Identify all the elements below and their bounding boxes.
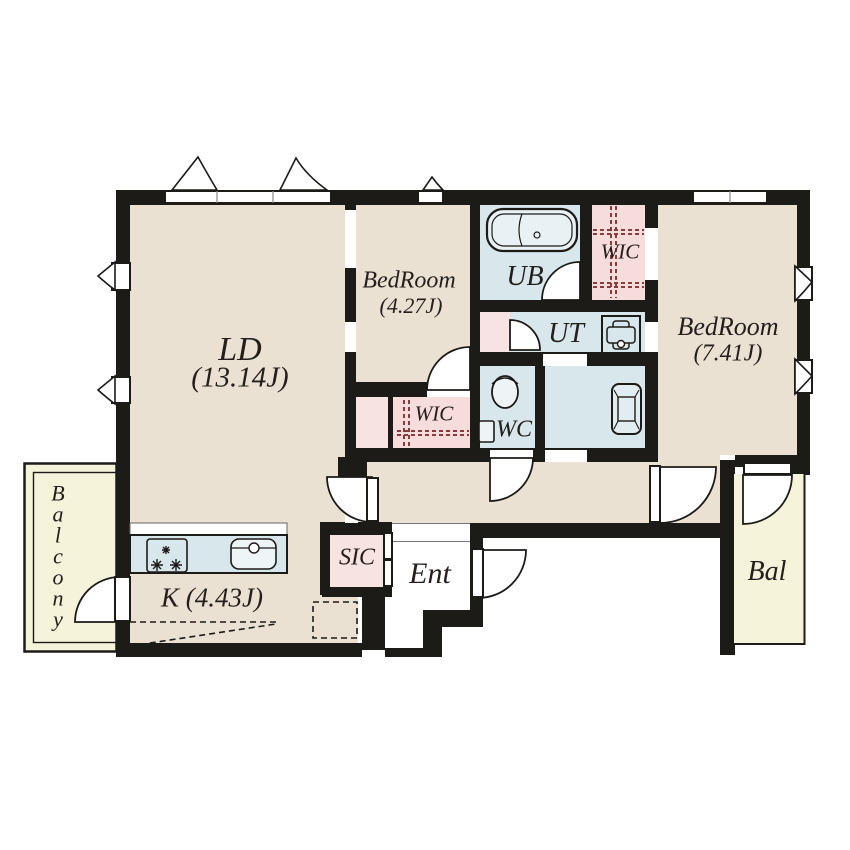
- floor-plan: LD (13.14J) BedRoom (4.27J) BedRoom (7.4…: [0, 0, 850, 850]
- window-awning-icon: [172, 157, 217, 190]
- door-arc-bedroom-large: [660, 467, 716, 523]
- label-wc: WC: [496, 417, 532, 444]
- fridge-space-dashed-box: [313, 602, 357, 638]
- balcony-left-structure: [25, 464, 117, 652]
- door-arc-wic-lower: [427, 347, 470, 390]
- vanity-icon: [612, 384, 641, 434]
- door-leaf-sic-lower: [383, 559, 393, 587]
- label-bedroom-small-name: BedRoom: [362, 268, 455, 295]
- door-leaf-ld: [366, 477, 379, 522]
- door-leaf-bedroom-large: [649, 465, 661, 523]
- bathtub-icon: [487, 209, 577, 251]
- label-balcony-right: Bal: [748, 556, 787, 588]
- label-balcony-left: Balcony: [51, 483, 64, 630]
- label-ld-size: (13.14J): [191, 362, 288, 395]
- door-leaf-balcony-left: [114, 576, 131, 622]
- label-bedroom-small-size: (4.27J): [380, 293, 443, 319]
- faucet-icon: [249, 543, 259, 553]
- label-ent: Ent: [409, 557, 451, 591]
- window-pane-dividers: [217, 191, 730, 203]
- label-wic-upper: WIC: [601, 240, 640, 265]
- door-arc-front-door: [478, 550, 526, 598]
- label-wic-lower: WIC: [415, 402, 454, 427]
- label-bedroom-large-size: (7.41J): [694, 341, 763, 368]
- door-arc-wc: [490, 458, 533, 501]
- door-leaf-sic-upper: [383, 532, 393, 560]
- window-awning-icon: [98, 262, 115, 290]
- washer-pan-icon: [602, 316, 640, 354]
- window-awning-icon: [795, 359, 812, 394]
- kitchen-counter: [130, 523, 287, 573]
- door-arc-unit-bath: [542, 262, 580, 300]
- label-sic: SIC: [339, 545, 375, 572]
- label-ut: UT: [548, 318, 584, 350]
- window-awning-icon: [98, 376, 115, 404]
- window-awning-icon: [795, 266, 812, 301]
- window-awning-icon: [280, 158, 327, 190]
- door-arc-utility: [510, 320, 540, 350]
- label-kitchen: K (4.43J): [161, 583, 263, 614]
- label-bedroom-large-name: BedRoom: [677, 312, 778, 342]
- window-awning-icon: [423, 177, 443, 190]
- door-leaf-balcony-right: [743, 462, 792, 475]
- door-leaf-front: [471, 548, 484, 598]
- label-ub: UB: [506, 261, 543, 293]
